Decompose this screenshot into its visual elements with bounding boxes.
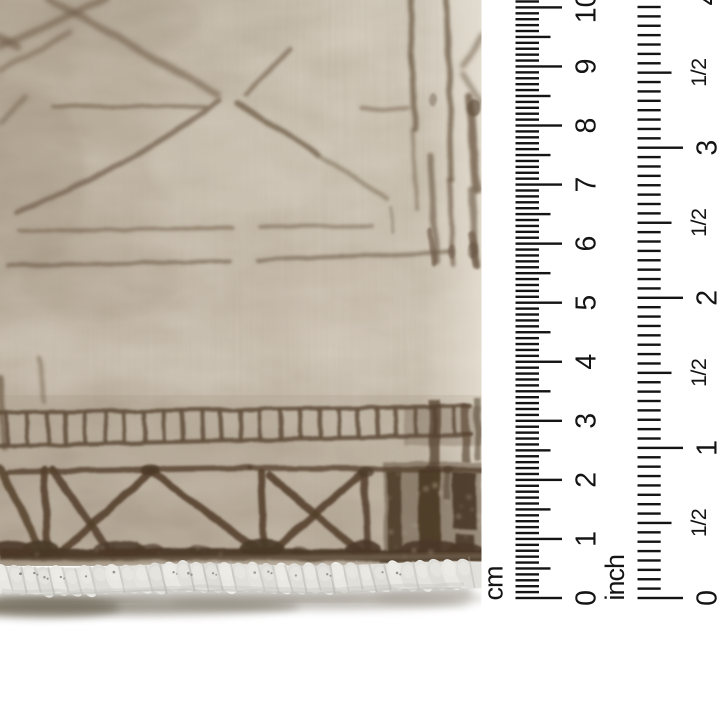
svg-text:8: 8 bbox=[571, 118, 603, 134]
svg-text:1/2: 1/2 bbox=[687, 509, 711, 537]
svg-text:1: 1 bbox=[692, 440, 720, 456]
svg-text:7: 7 bbox=[571, 177, 603, 193]
svg-text:5: 5 bbox=[571, 295, 603, 311]
svg-text:1: 1 bbox=[571, 531, 603, 547]
svg-text:9: 9 bbox=[571, 59, 603, 75]
svg-text:6: 6 bbox=[571, 236, 603, 252]
svg-text:inch: inch bbox=[600, 555, 630, 601]
svg-text:0: 0 bbox=[571, 590, 603, 606]
svg-text:3: 3 bbox=[692, 140, 720, 156]
svg-text:1/2: 1/2 bbox=[687, 209, 711, 237]
svg-text:2: 2 bbox=[571, 472, 603, 488]
svg-text:10: 10 bbox=[571, 0, 603, 23]
svg-text:0: 0 bbox=[692, 590, 720, 606]
svg-text:1/2: 1/2 bbox=[687, 58, 711, 86]
svg-text:4: 4 bbox=[692, 0, 720, 6]
svg-text:4: 4 bbox=[571, 354, 603, 370]
svg-text:2: 2 bbox=[692, 290, 720, 306]
svg-text:1/2: 1/2 bbox=[687, 359, 711, 387]
svg-text:3: 3 bbox=[571, 413, 603, 429]
svg-text:cm: cm bbox=[479, 567, 509, 601]
